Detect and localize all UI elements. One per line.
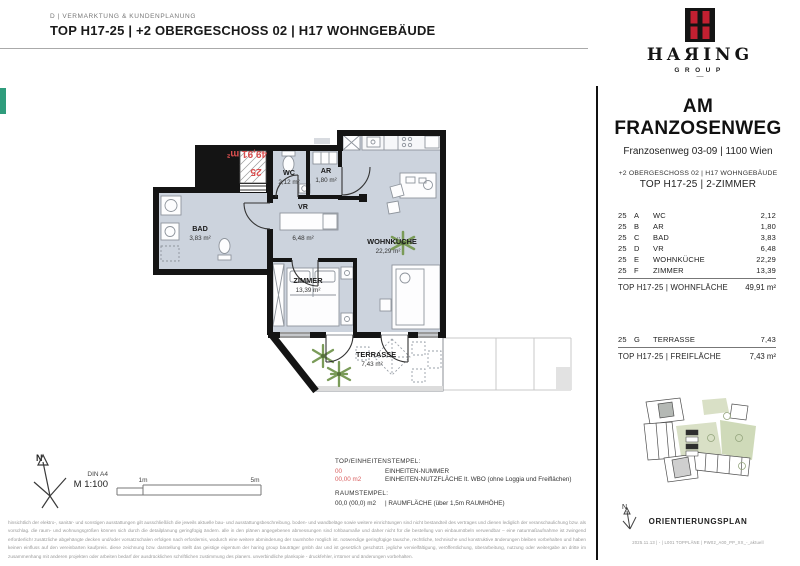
terrace-floor	[273, 335, 443, 391]
plan-sheet: D | VERMARKTUNG & KUNDENPLANUNG TOP H17-…	[0, 0, 800, 566]
room-label-zimmer: ZIMMER	[293, 276, 323, 285]
orientation-title: ORIENTIERUNGSPLAN	[600, 517, 796, 526]
terrace-railing-band	[316, 386, 443, 391]
room-area-wc: 2,12 m²	[278, 179, 299, 186]
room-area-vr: 6,48 m²	[292, 235, 313, 242]
room-area-bad: 3,83 m²	[189, 235, 210, 242]
project-name: AM FRANZOSENWEG	[600, 96, 796, 140]
room-label-wc: WC	[283, 168, 295, 177]
stamp-legend-row: 00,00 m2 EINHEITEN-NUTZFLÄCHE lt. WBO (o…	[335, 476, 585, 484]
unit-stamp-number: 25	[250, 166, 262, 177]
room-label-terrasse: TERRASSE	[356, 350, 396, 359]
table-row: 25 D VR 6,48	[618, 243, 776, 254]
unit-stamp-area: 49,91 m²	[226, 148, 267, 159]
stamp-legend-title: TOP/EINHEITENSTEMPEL:	[335, 458, 585, 465]
room-label-ar: AR	[321, 166, 332, 175]
teal-edge-tab	[0, 88, 6, 114]
room-area-terrasse: 7,43 m²	[361, 361, 382, 368]
freiflaeche-table: 25 G TERRASSE 7,43 TOP H17-25 | FREIFLÄC…	[618, 334, 776, 362]
room-area-ar: 1,80 m²	[315, 177, 336, 184]
window-sill	[314, 138, 330, 144]
department-label: D | VERMARKTUNG & KUNDENPLANUNG	[50, 13, 196, 20]
sheet-format-block: DIN A4 M 1:100	[60, 471, 108, 490]
scale-bar: 1m 5m	[115, 473, 265, 499]
neighbour-terrace-lines	[443, 338, 571, 390]
scale-5m-label: 5m	[250, 477, 259, 484]
wohnflaeche-total-row: TOP H17-25 | WOHNFLÄCHE 49,91 m²	[618, 278, 776, 293]
table-row: 25 G TERRASSE 7,43	[618, 334, 776, 345]
header-divider	[0, 48, 588, 49]
table-row: 25 A WC 2,12	[618, 210, 776, 221]
sheet-format: DIN A4	[60, 471, 108, 478]
room-label-wohnkueche: WOHNKÜCHE	[367, 237, 417, 246]
room-area-wohnkueche: 22,29 m²	[376, 248, 401, 255]
haring-logo-icon	[685, 8, 715, 42]
project-block: AM FRANZOSENWEG Franzosenweg 03-09 | 110…	[600, 96, 796, 190]
raum-legend-row: 00,0 (00,0) m2 | RAUMFLÄCHE (über 1,5m R…	[335, 500, 585, 508]
orientation-map	[636, 396, 764, 498]
room-label-vr: VR	[298, 202, 309, 211]
plan-file-reference: 2025.11.13 | - | L001 TOPPLÄNE | PW02_A0…	[600, 540, 796, 545]
room-label-bad: BAD	[192, 224, 208, 233]
sheet-scale: M 1:100	[60, 479, 108, 490]
stamp-legend: TOP/EINHEITENSTEMPEL: 00 EINHEITEN-NUMME…	[335, 458, 585, 508]
logo-dash: —	[640, 74, 760, 79]
project-floor-line: +2 OBERGESCHOSS 02 | H17 WOHNGEBÄUDE	[600, 170, 796, 177]
table-row: 25 F ZIMMER 13,39	[618, 265, 776, 276]
page-title: TOP H17-25 | +2 OBERGESCHOSS 02 | H17 WO…	[50, 23, 435, 38]
wall-post	[359, 194, 367, 202]
raum-legend-title: RAUMSTEMPEL:	[335, 490, 585, 497]
entry-door-gap	[240, 184, 266, 192]
room-area-zimmer: 13,39 m²	[296, 287, 321, 294]
neighbour-terrace-patch	[556, 367, 571, 390]
stamp-legend-row: 00 EINHEITEN-NUMMER	[335, 468, 585, 476]
project-address: Franzosenweg 03-09 | 1100 Wien	[600, 146, 796, 157]
scale-1m-label: 1m	[138, 477, 147, 484]
table-row: 25 E WOHNKÜCHE 22,29	[618, 254, 776, 265]
legal-disclaimer: hinsichtlich der elektro-, sanitär- und …	[8, 519, 586, 561]
table-row: 25 C BAD 3,83	[618, 232, 776, 243]
haring-group-logo: HAЯING GROUP —	[640, 8, 760, 79]
table-row: 25 B AR 1,80	[618, 221, 776, 232]
floor-plan: 49,91 m² 25 WC 2,12 m² AR 1,80 m² BAD 3,…	[140, 85, 580, 415]
freiflaeche-total-row: TOP H17-25 | FREIFLÄCHE 7,43 m²	[618, 347, 776, 362]
column-divider	[596, 86, 598, 560]
rooms-table: 25 A WC 2,12 25 B AR 1,80 25 C BAD 3,83 …	[618, 210, 776, 293]
logo-wordmark: HAЯING	[640, 45, 760, 65]
project-unit-line: TOP H17-25 | 2-ZIMMER	[600, 179, 796, 190]
